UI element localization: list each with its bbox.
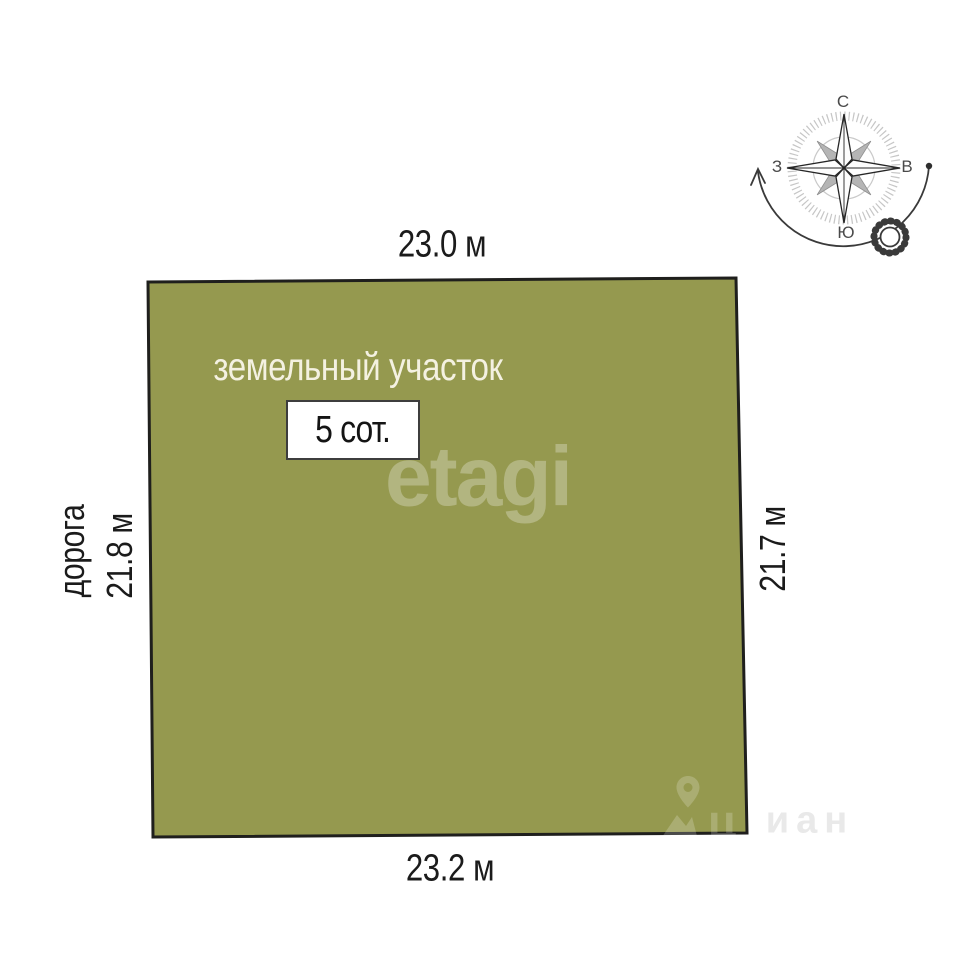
dimension-left: 21.8 м — [99, 513, 141, 599]
road-label: дорога — [51, 505, 93, 598]
corner-watermark-on-white: иан — [766, 800, 854, 843]
land-plot-diagram: С Ю З В 23.0 м 23.2 м дорога 21.8 м 21.7… — [0, 0, 960, 960]
compass-north-label: С — [837, 92, 849, 111]
corner-watermark-on-plot: ц — [708, 794, 736, 848]
compass-south-label: Ю — [837, 223, 854, 242]
dimension-bottom: 23.2 м — [406, 848, 494, 891]
sun-path-end-dot — [926, 163, 932, 169]
dimension-top: 23.0 м — [398, 224, 486, 267]
sun-icon-body — [881, 228, 900, 247]
compass-west-label: З — [772, 157, 782, 176]
dimension-right: 21.7 м — [752, 506, 794, 592]
plot-title: земельный участок — [213, 346, 502, 390]
compass-east-label: В — [901, 157, 912, 176]
etagi-watermark: etagi — [385, 429, 571, 526]
area-badge-text: 5 сот. — [316, 409, 391, 452]
